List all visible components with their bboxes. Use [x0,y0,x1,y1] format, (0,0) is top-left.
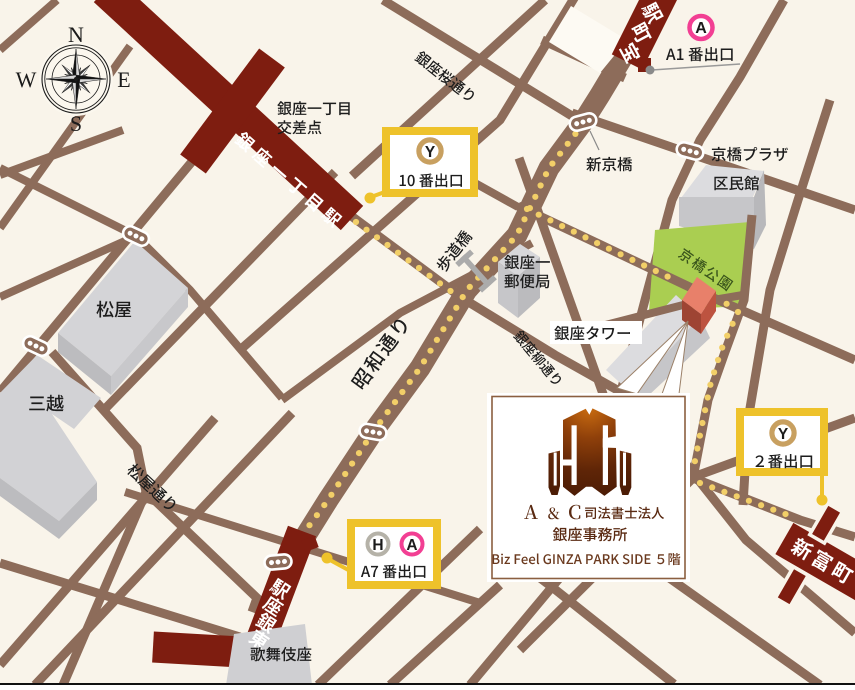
svg-text:Y: Y [778,426,789,443]
svg-text:W: W [16,67,37,92]
svg-text:S: S [70,111,82,136]
svg-text:H: H [372,537,383,554]
svg-text:E: E [117,67,130,92]
svg-text:N: N [68,22,84,47]
svg-text:Y: Y [425,144,436,161]
svg-text:A: A [695,20,707,37]
svg-text:A: A [406,537,417,554]
